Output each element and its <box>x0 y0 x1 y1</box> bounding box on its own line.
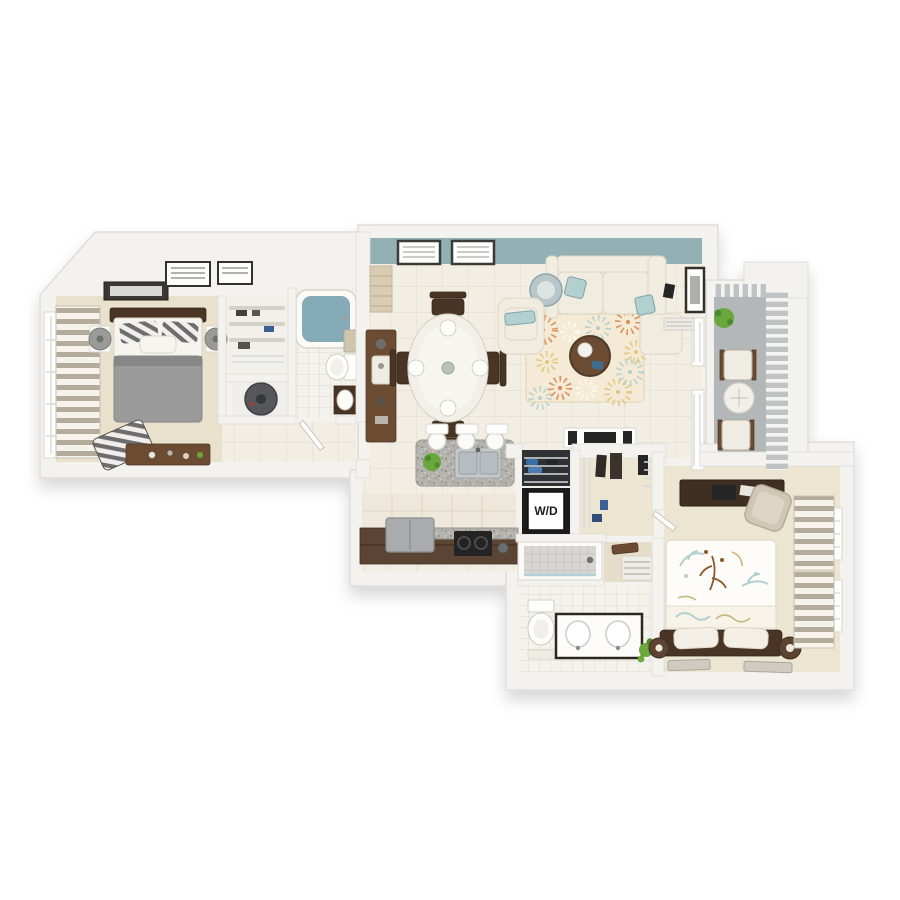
tv-icon <box>584 432 616 443</box>
bed-1 <box>110 308 206 422</box>
tray <box>578 343 592 357</box>
double-sink <box>455 448 501 478</box>
entry-steps <box>370 266 392 312</box>
shower-head-icon <box>587 557 593 563</box>
place-setting <box>472 360 488 376</box>
bar-stool <box>428 432 446 450</box>
teal-pillow <box>564 276 587 299</box>
round-coffee-table <box>570 336 610 376</box>
speaker-icon <box>568 431 577 445</box>
balcony-railing-top <box>712 284 768 297</box>
wall-frame-1 <box>398 241 440 264</box>
pendant-light-icon <box>456 424 478 434</box>
nightstand-left <box>89 326 111 352</box>
bar-stool <box>486 432 504 450</box>
refrigerator <box>386 518 434 552</box>
hanging-plant <box>714 308 734 328</box>
linen-shelves <box>622 556 652 580</box>
faucet-icon <box>341 315 347 321</box>
floorplan-svg: W/D <box>0 0 900 900</box>
small-plant-icon <box>197 452 203 458</box>
place-setting <box>408 360 424 376</box>
white-pillow <box>674 627 719 649</box>
wall-frame-2 <box>452 241 494 264</box>
faucet-icon <box>576 646 580 650</box>
place-setting <box>440 400 456 416</box>
duvet-fold <box>666 606 776 628</box>
teal-pillow <box>634 294 655 315</box>
washer-dryer-label: W/D <box>534 504 558 518</box>
white-pillow <box>724 627 769 649</box>
dining-chair <box>390 350 396 386</box>
blue-book <box>591 360 603 369</box>
kettle-icon <box>498 543 508 553</box>
dining-chair <box>500 350 506 386</box>
floor-mat <box>744 661 792 673</box>
patio-chair <box>718 420 754 450</box>
place-setting <box>440 320 456 336</box>
floor-mat <box>668 659 710 670</box>
toilet <box>326 354 357 380</box>
bar-stool <box>457 432 475 450</box>
white-pillow <box>140 336 176 353</box>
striped-curtain <box>794 572 834 648</box>
stacked-washer-dryer: W/D <box>522 488 570 534</box>
teal-pillow <box>504 310 535 325</box>
double-vanity <box>556 614 642 658</box>
island-plant <box>423 453 441 471</box>
pendant-light-icon <box>426 424 448 434</box>
hallway-1-floor <box>222 422 356 462</box>
vanity-sink <box>334 386 357 414</box>
dresser <box>126 444 210 465</box>
centerpiece <box>442 362 454 374</box>
patio-chair <box>720 350 756 380</box>
toilet <box>528 600 554 659</box>
floorplan-image: W/D <box>0 0 900 900</box>
balcony-railing-right <box>766 292 788 470</box>
towels <box>344 330 356 352</box>
faucet-icon <box>476 448 481 453</box>
pendant-light-icon <box>486 424 508 434</box>
bed-2 <box>660 540 782 656</box>
faucet-icon <box>616 646 620 650</box>
shower <box>518 542 602 580</box>
water-heater <box>245 383 277 415</box>
laundry-closet: W/D <box>522 450 570 534</box>
laptop-icon <box>712 485 736 500</box>
striped-curtain <box>794 496 834 570</box>
cooktop <box>454 531 492 556</box>
speaker-icon <box>623 431 632 445</box>
picture-frame-icon <box>166 262 210 286</box>
dining-chair <box>430 292 466 298</box>
armchair <box>498 298 544 354</box>
